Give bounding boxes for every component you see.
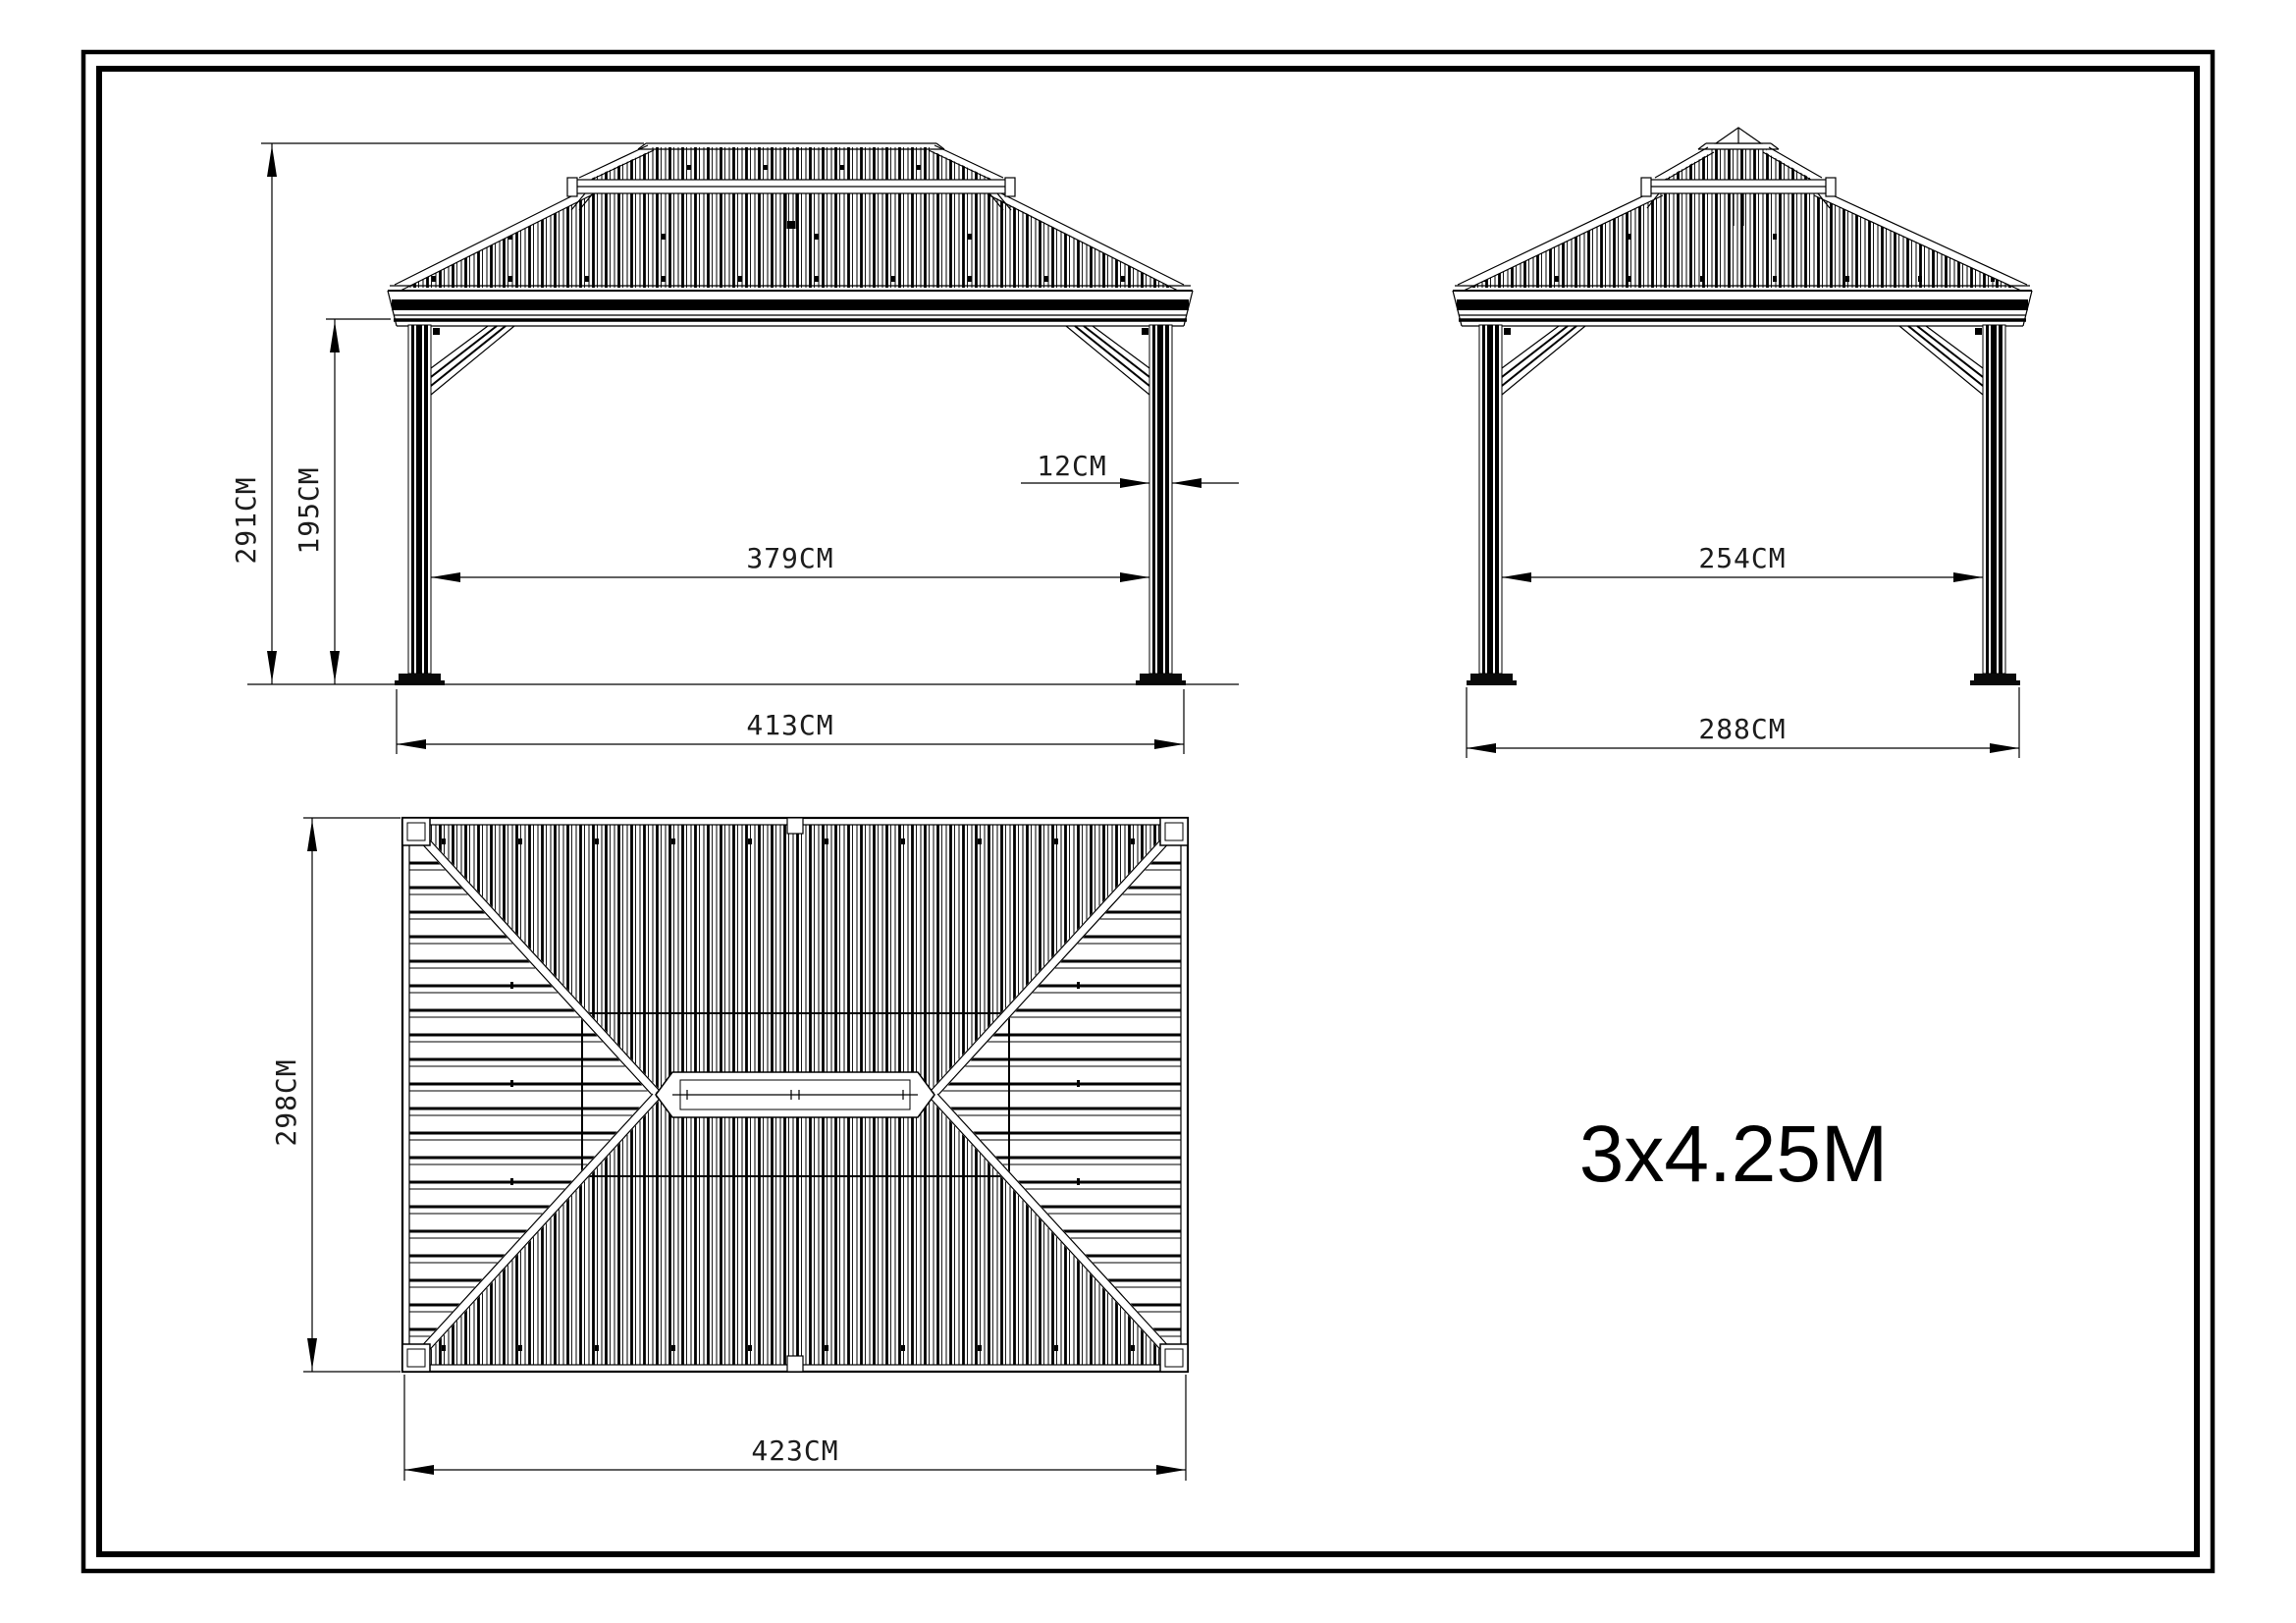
side-cupola-cap	[1698, 128, 1779, 149]
front-corner-braces	[431, 326, 1149, 395]
dim-front-clear-span: 379CM	[746, 542, 833, 574]
dim-front-eave-height: 195CM	[293, 466, 325, 554]
drawing-sheet: 291CM 195CM 12CM 379CM 413CM	[0, 0, 2296, 1623]
dim-front-post-width: 12CM	[1037, 450, 1106, 482]
plan-ridge-cupola	[656, 1072, 934, 1117]
dim-side-clear-span: 254CM	[1698, 542, 1786, 574]
side-dimensions: 254CM 288CM	[1467, 542, 2019, 758]
front-main-roof	[395, 189, 1184, 291]
gazebo-technical-drawing: 291CM 195CM 12CM 379CM 413CM	[0, 0, 2296, 1623]
side-elevation-view: 254CM 288CM	[1453, 128, 2032, 758]
front-cornice	[388, 286, 1193, 326]
plan-view: 298CM 423CM	[270, 818, 1188, 1481]
product-size-label: 3x4.25M	[1579, 1109, 1889, 1199]
dim-front-overall-height: 291CM	[230, 476, 262, 564]
front-posts	[395, 325, 1186, 685]
side-corner-braces	[1502, 326, 1983, 395]
dim-front-overall-width: 413CM	[746, 709, 833, 741]
dim-plan-overall-depth: 298CM	[270, 1058, 302, 1146]
side-main-roof	[1458, 189, 2027, 291]
side-cornice	[1453, 286, 2032, 326]
dim-plan-overall-width: 423CM	[751, 1434, 838, 1467]
front-elevation-view: 291CM 195CM 12CM 379CM 413CM	[230, 143, 1239, 754]
side-posts	[1467, 325, 2020, 685]
dim-side-overall-width: 288CM	[1698, 713, 1786, 745]
